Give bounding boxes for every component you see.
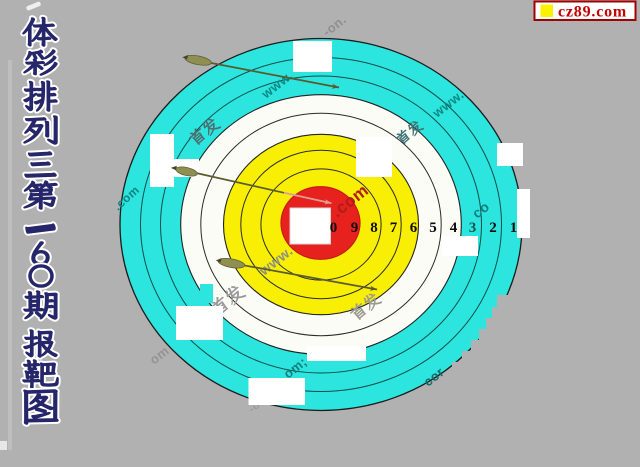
svg-text:1: 1	[510, 220, 518, 236]
svg-text:9: 9	[351, 220, 359, 236]
svg-text:0: 0	[330, 220, 338, 236]
svg-text:2: 2	[489, 220, 497, 236]
svg-text:3: 3	[469, 220, 477, 236]
svg-text:5: 5	[429, 220, 437, 236]
svg-text:4: 4	[450, 220, 458, 236]
svg-text:6: 6	[410, 220, 418, 236]
svg-text:cz89.com: cz89.com	[558, 4, 627, 21]
svg-text:7: 7	[390, 220, 398, 236]
svg-text:8: 8	[370, 220, 378, 236]
